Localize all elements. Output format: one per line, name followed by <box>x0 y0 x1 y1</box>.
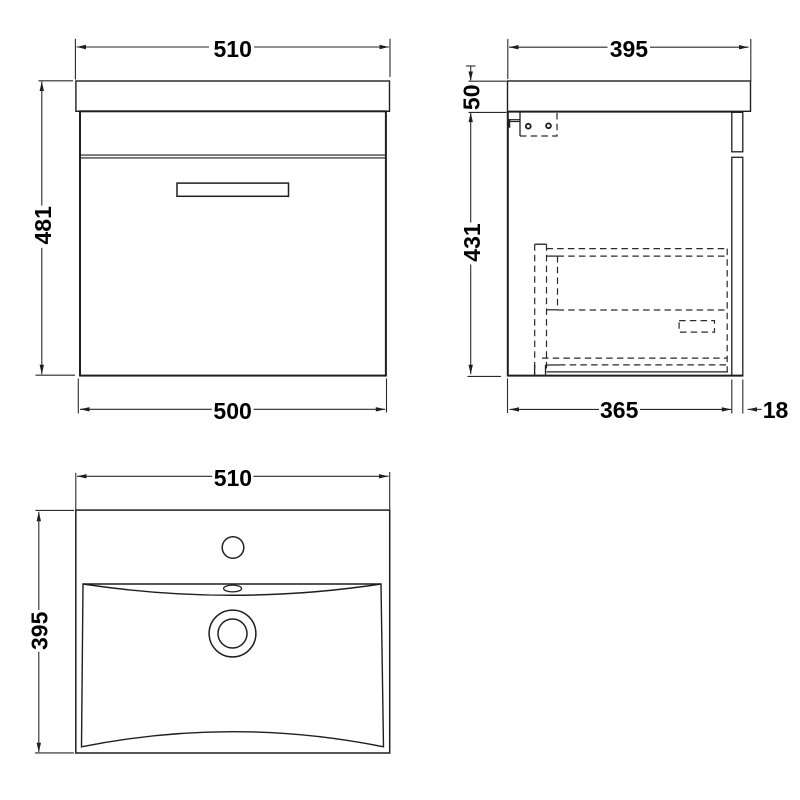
svg-text:395: 395 <box>610 36 649 62</box>
svg-text:481: 481 <box>30 206 56 245</box>
svg-text:365: 365 <box>600 397 639 423</box>
svg-text:18: 18 <box>763 397 789 423</box>
svg-text:500: 500 <box>213 398 251 424</box>
svg-text:50: 50 <box>459 85 485 111</box>
svg-text:510: 510 <box>214 465 252 491</box>
svg-text:431: 431 <box>459 223 485 262</box>
svg-text:395: 395 <box>27 611 53 650</box>
svg-text:510: 510 <box>214 36 252 62</box>
